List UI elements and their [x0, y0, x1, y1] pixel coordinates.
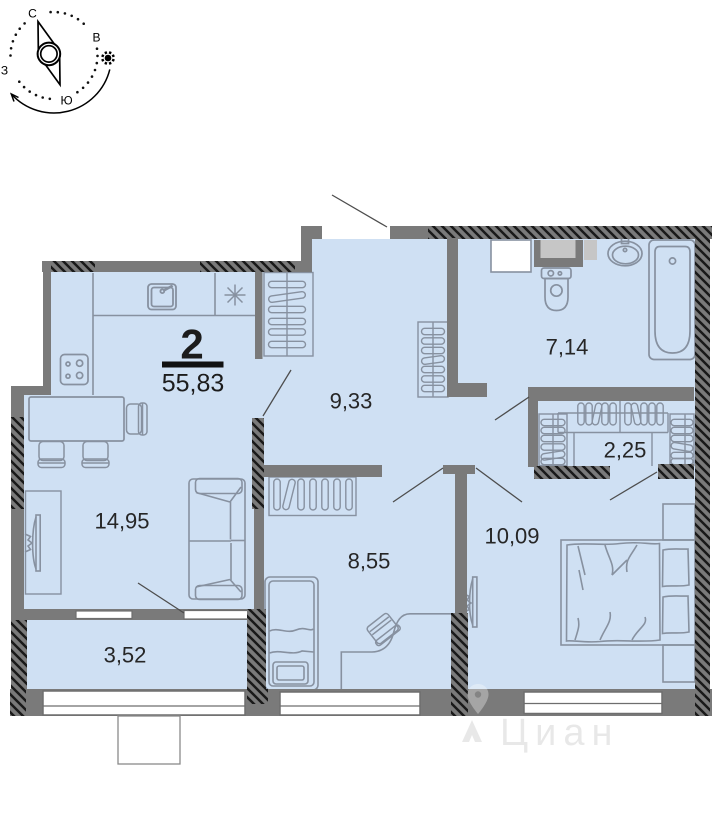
svg-text:7,14: 7,14	[546, 335, 589, 360]
svg-text:9,33: 9,33	[330, 389, 373, 414]
svg-text:10,09: 10,09	[484, 524, 539, 549]
svg-text:14,95: 14,95	[94, 509, 149, 534]
svg-text:В: В	[92, 31, 100, 45]
svg-text:Циан: Циан	[500, 712, 619, 754]
svg-text:3,52: 3,52	[104, 643, 147, 668]
svg-text:З: З	[1, 64, 8, 78]
svg-text:8,55: 8,55	[348, 549, 391, 574]
svg-text:2: 2	[180, 321, 203, 368]
svg-text:55,83: 55,83	[162, 370, 225, 398]
svg-text:2,25: 2,25	[604, 438, 647, 463]
svg-text:С: С	[28, 7, 37, 21]
svg-text:Ю: Ю	[60, 94, 72, 108]
